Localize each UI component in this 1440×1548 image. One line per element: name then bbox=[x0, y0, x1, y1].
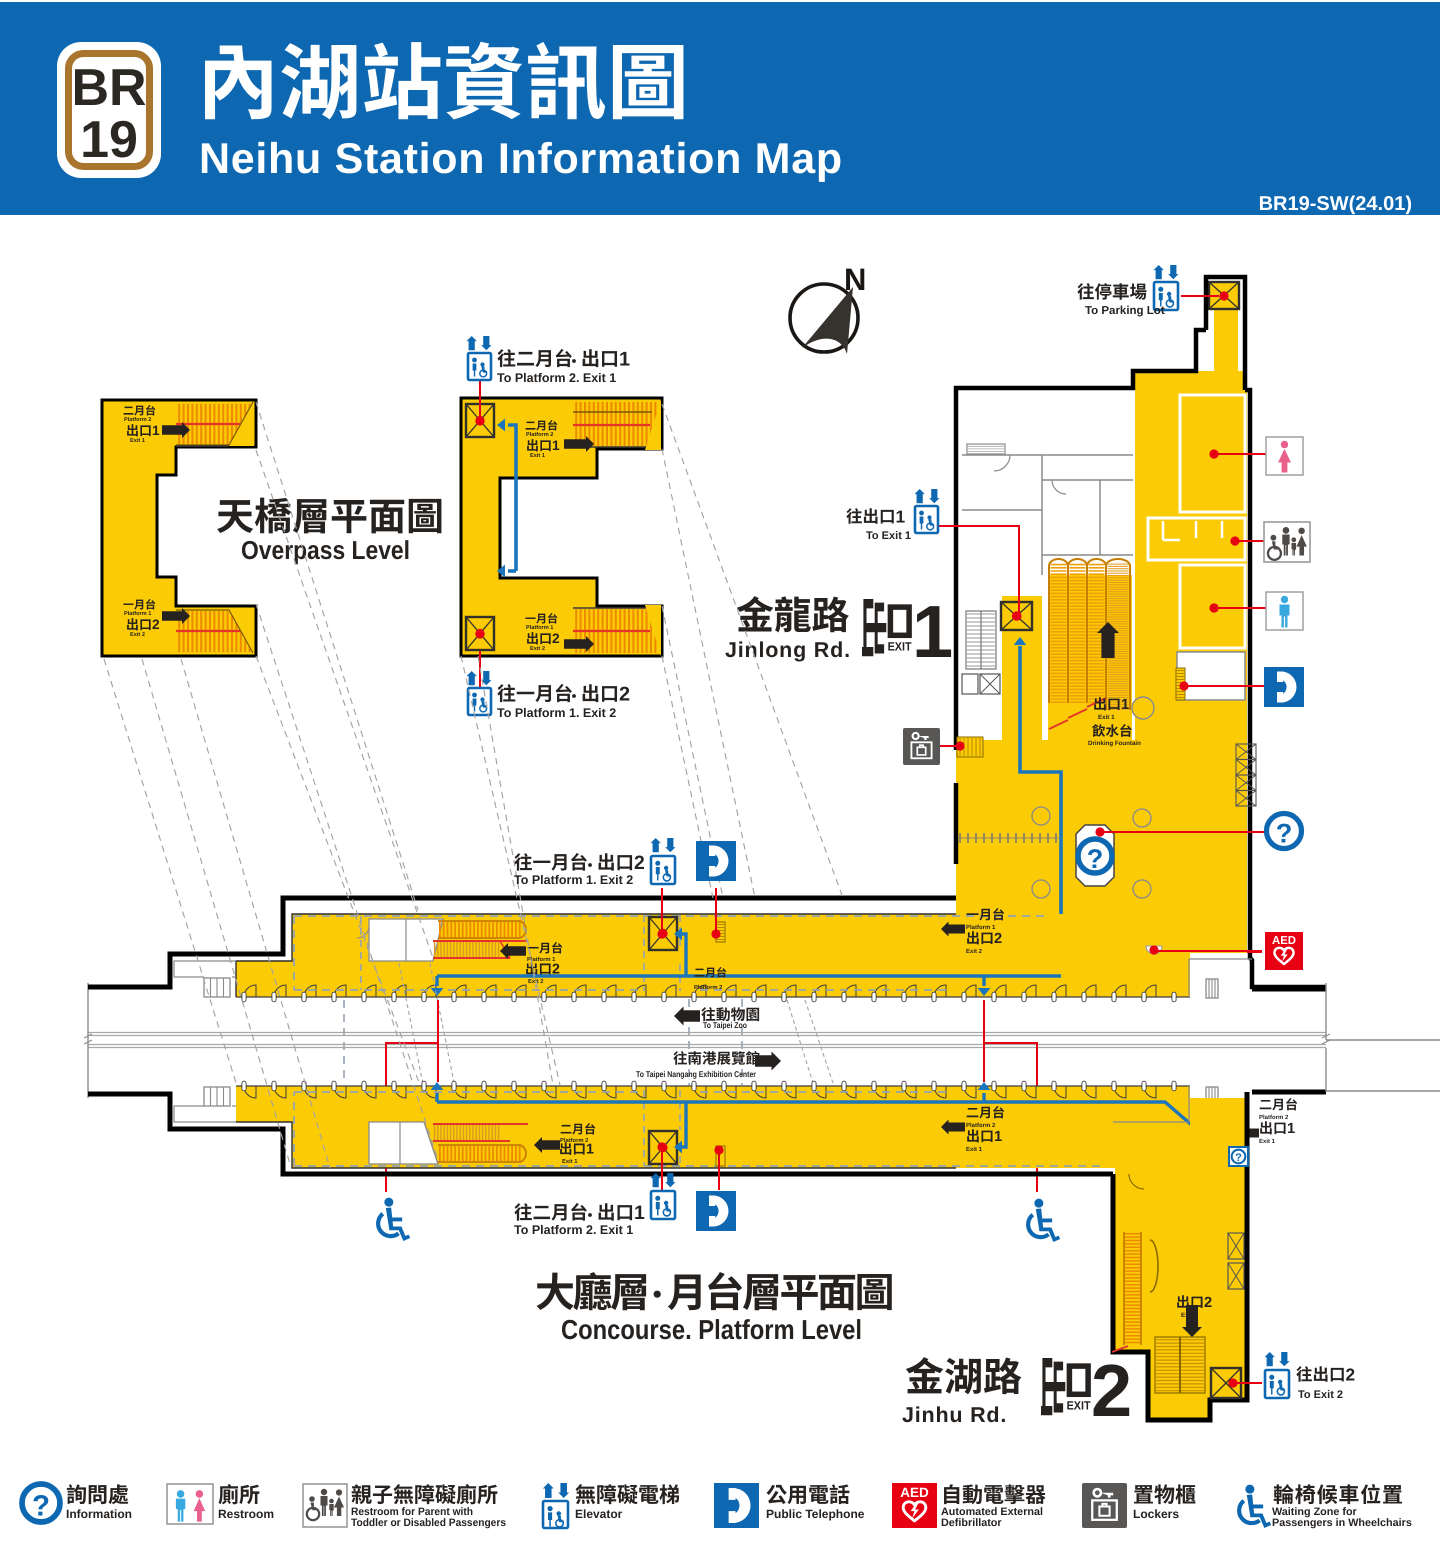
svg-text:Exit 1: Exit 1 bbox=[530, 452, 545, 459]
svg-text:2: 2 bbox=[552, 631, 560, 646]
svg-text:Neihu Station Information Map: Neihu Station Information Map bbox=[199, 135, 843, 183]
svg-text:To Platform 2. Exit 1: To Platform 2. Exit 1 bbox=[514, 1223, 633, 1237]
svg-text:To Exit 2: To Exit 2 bbox=[1298, 1389, 1343, 1401]
svg-text:EXIT: EXIT bbox=[888, 640, 913, 654]
svg-text:Drinking Fountain: Drinking Fountain bbox=[1088, 740, 1141, 747]
svg-text:?: ? bbox=[1235, 1152, 1242, 1164]
svg-text:To Exit 1: To Exit 1 bbox=[866, 530, 911, 542]
svg-text:2: 2 bbox=[152, 617, 160, 632]
svg-text:2: 2 bbox=[994, 931, 1002, 947]
svg-text:2: 2 bbox=[619, 683, 630, 705]
svg-text:AED: AED bbox=[1272, 935, 1296, 947]
svg-text:To Platform 1. Exit 2: To Platform 1. Exit 2 bbox=[497, 706, 616, 720]
svg-text:Platform 2: Platform 2 bbox=[124, 416, 151, 423]
svg-text:1: 1 bbox=[634, 1202, 645, 1224]
svg-text:Exit 1: Exit 1 bbox=[130, 437, 145, 444]
svg-text:Lockers: Lockers bbox=[1133, 1507, 1179, 1521]
svg-text:BR19-SW(24.01): BR19-SW(24.01) bbox=[1259, 193, 1412, 215]
svg-text:Exit 2: Exit 2 bbox=[530, 645, 545, 652]
svg-text:Platform 1: Platform 1 bbox=[124, 610, 151, 617]
svg-text:Exit 1: Exit 1 bbox=[1098, 714, 1115, 721]
svg-text:AED: AED bbox=[900, 1485, 929, 1500]
svg-text:Restroom: Restroom bbox=[218, 1507, 274, 1521]
svg-text:BR: BR bbox=[71, 59, 146, 117]
svg-text:Platform 1: Platform 1 bbox=[966, 924, 996, 931]
svg-text:2: 2 bbox=[634, 852, 645, 874]
svg-text:Passengers in Wheelchairs: Passengers in Wheelchairs bbox=[1272, 1517, 1412, 1529]
svg-text:Exit 1: Exit 1 bbox=[562, 1158, 578, 1165]
svg-text:2: 2 bbox=[1346, 1364, 1356, 1384]
svg-text:1: 1 bbox=[1121, 697, 1129, 713]
svg-text:Jinlong Rd.: Jinlong Rd. bbox=[725, 638, 851, 662]
svg-text:N: N bbox=[844, 262, 866, 297]
svg-text:?: ? bbox=[32, 1490, 50, 1523]
svg-text:Exit 1: Exit 1 bbox=[1259, 1138, 1276, 1145]
svg-text:1: 1 bbox=[619, 348, 630, 370]
svg-text:Exit 1: Exit 1 bbox=[966, 1146, 983, 1153]
svg-text:Public Telephone: Public Telephone bbox=[766, 1507, 865, 1521]
svg-text:2: 2 bbox=[1091, 1349, 1132, 1432]
svg-text:To Platform 1. Exit 2: To Platform 1. Exit 2 bbox=[514, 873, 633, 887]
svg-text:19: 19 bbox=[80, 111, 138, 169]
svg-text:1: 1 bbox=[1287, 1121, 1295, 1137]
svg-text:2: 2 bbox=[1204, 1295, 1212, 1311]
svg-text:1: 1 bbox=[912, 590, 953, 673]
svg-text:Jinhu Rd.: Jinhu Rd. bbox=[902, 1403, 1007, 1427]
svg-text:Concourse. Platform Level: Concourse. Platform Level bbox=[561, 1314, 862, 1345]
svg-text:1: 1 bbox=[896, 506, 906, 526]
svg-text:Platform 2: Platform 2 bbox=[526, 431, 553, 438]
svg-text:EXIT: EXIT bbox=[1067, 1399, 1092, 1413]
svg-text:Elevator: Elevator bbox=[575, 1507, 623, 1521]
svg-text:Platform 1: Platform 1 bbox=[526, 624, 553, 631]
svg-text:1: 1 bbox=[586, 1142, 594, 1158]
svg-text:1: 1 bbox=[994, 1129, 1002, 1145]
svg-text:Overpass Level: Overpass Level bbox=[241, 535, 410, 565]
svg-text:Toddler or Disabled Passengers: Toddler or Disabled Passengers bbox=[351, 1517, 506, 1529]
svg-text:?: ? bbox=[1087, 844, 1104, 874]
svg-text:Exit 2: Exit 2 bbox=[966, 948, 983, 955]
svg-text:Platform 2: Platform 2 bbox=[1259, 1114, 1289, 1121]
svg-text:To Parking Lot: To Parking Lot bbox=[1085, 305, 1165, 317]
svg-text:Defibrillator: Defibrillator bbox=[941, 1517, 1002, 1529]
svg-text:?: ? bbox=[1276, 818, 1293, 849]
svg-text:Platform 2: Platform 2 bbox=[694, 984, 722, 991]
svg-text:Information: Information bbox=[66, 1507, 132, 1521]
svg-text:Platform 2: Platform 2 bbox=[560, 1137, 588, 1144]
svg-text:To Taipei Nangang Exhibition C: To Taipei Nangang Exhibition Center bbox=[636, 1069, 757, 1079]
svg-text:To Taipei Zoo: To Taipei Zoo bbox=[703, 1020, 747, 1030]
svg-text:Exit 2: Exit 2 bbox=[130, 631, 145, 638]
svg-text:1: 1 bbox=[152, 423, 160, 438]
svg-text:Platform 2: Platform 2 bbox=[966, 1122, 996, 1129]
svg-text:1: 1 bbox=[552, 438, 560, 453]
svg-text:Exit 2: Exit 2 bbox=[1181, 1312, 1198, 1319]
svg-text:To Platform 2. Exit 1: To Platform 2. Exit 1 bbox=[497, 371, 616, 385]
